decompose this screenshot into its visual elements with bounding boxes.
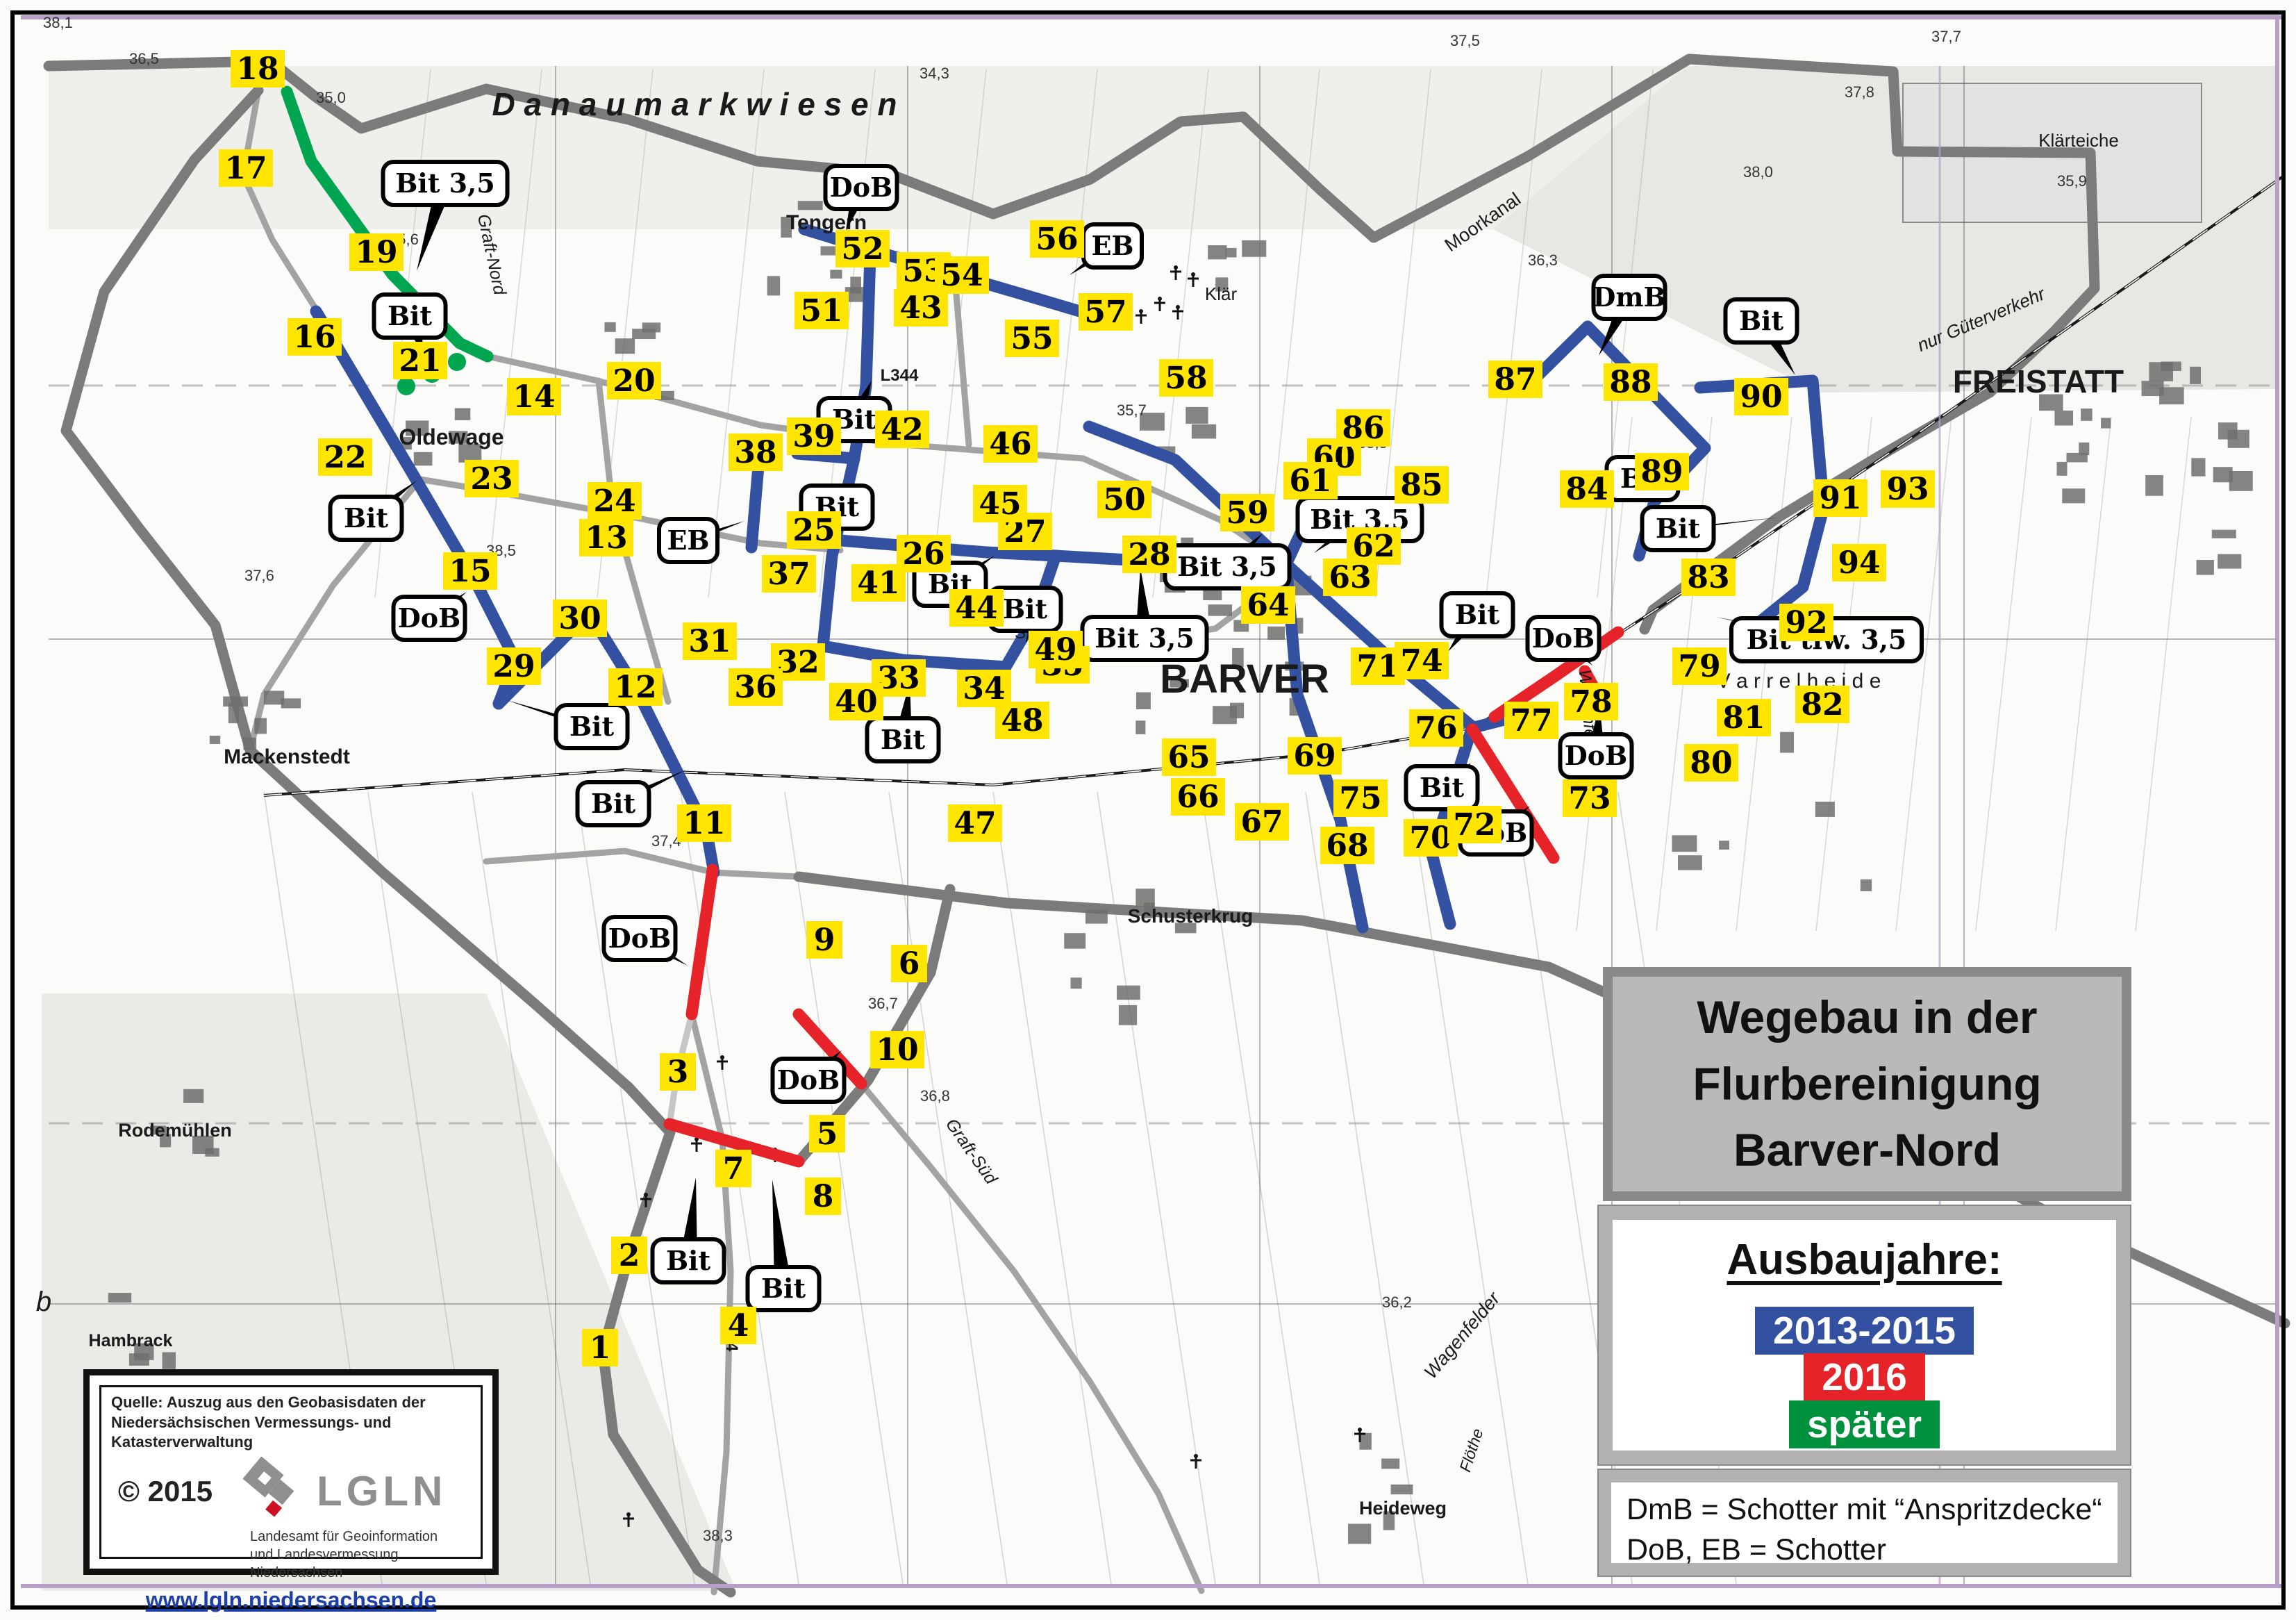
elevation-label: 36,8 bbox=[920, 1087, 950, 1105]
number-label: 31 bbox=[688, 624, 731, 659]
title-line-1: Wegebau in der bbox=[1697, 984, 2037, 1051]
building bbox=[2062, 488, 2085, 503]
building bbox=[264, 691, 284, 704]
elevation-label: 37,6 bbox=[244, 567, 274, 584]
number-label: 55 bbox=[1010, 321, 1053, 356]
callout-label: Bit bbox=[666, 1245, 711, 1276]
elevation-label: 36,3 bbox=[1528, 251, 1558, 269]
building bbox=[455, 408, 470, 420]
building bbox=[1861, 879, 1872, 891]
number-label: 36 bbox=[734, 670, 776, 705]
number-label: 32 bbox=[776, 645, 819, 680]
source-org-line2: und Landesvermessung Niedersachsen bbox=[250, 1547, 398, 1580]
callout-label: Bit bbox=[1420, 772, 1465, 803]
title-box: Wegebau in der Flurbereinigung Barver-No… bbox=[1603, 967, 2131, 1201]
number-label: 45 bbox=[979, 486, 1021, 522]
number-label: 16 bbox=[293, 320, 335, 355]
place-name: Oldewage bbox=[399, 424, 504, 449]
number-label: 9 bbox=[814, 923, 835, 958]
place-name: Schusterkrug bbox=[1128, 905, 1254, 927]
elevation-label: 38,1 bbox=[43, 14, 73, 31]
legend-entry-3: später bbox=[1789, 1400, 1940, 1448]
building bbox=[414, 452, 433, 465]
callout-label: DmB bbox=[1592, 281, 1665, 313]
elevation-label: 37,4 bbox=[651, 832, 681, 850]
building bbox=[615, 338, 635, 354]
building bbox=[604, 322, 615, 332]
building bbox=[1192, 424, 1216, 439]
source-org-line1: Landesamt für Geoinformation bbox=[250, 1529, 438, 1544]
legend-entry-2: 2016 bbox=[1804, 1353, 1924, 1401]
wind-turbine-icon bbox=[626, 1512, 631, 1516]
elevation-label: 36,2 bbox=[1382, 1293, 1412, 1311]
number-label: 94 bbox=[1838, 545, 1880, 581]
page-root: { "title_box": {"lines": ["Wegebau in de… bbox=[0, 0, 2296, 1620]
callout-label: EB bbox=[667, 524, 709, 556]
callout-label: Bit bbox=[881, 724, 926, 755]
number-label: 48 bbox=[1001, 703, 1043, 738]
building bbox=[767, 276, 780, 295]
building bbox=[1242, 240, 1266, 257]
number-label: 26 bbox=[902, 536, 945, 572]
callout-label: Bit 3,5 bbox=[1095, 622, 1194, 654]
wind-turbine-icon bbox=[1174, 265, 1178, 270]
number-label: 72 bbox=[1453, 807, 1495, 843]
place-name: Mackenstedt bbox=[224, 745, 350, 768]
building bbox=[1135, 720, 1145, 734]
construction-dot-green bbox=[397, 377, 415, 395]
lgln-logo-icon bbox=[229, 1457, 313, 1526]
number-label: 57 bbox=[1084, 295, 1126, 330]
number-label: 6 bbox=[899, 946, 920, 982]
number-label: 34 bbox=[963, 671, 1005, 706]
construction-dot-green bbox=[448, 353, 466, 371]
number-label: 68 bbox=[1326, 828, 1368, 863]
number-label: 75 bbox=[1339, 781, 1381, 816]
building bbox=[228, 702, 239, 723]
callout-label: Bit bbox=[761, 1273, 806, 1304]
number-label: 41 bbox=[857, 565, 899, 601]
building bbox=[108, 1293, 131, 1303]
copyright-text: © 2015 bbox=[118, 1475, 229, 1508]
building bbox=[1381, 1459, 1399, 1469]
number-label: 74 bbox=[1400, 643, 1442, 679]
building bbox=[2161, 361, 2181, 370]
legend-entries: 2013-20152016später bbox=[1613, 1307, 2116, 1448]
wind-turbine-icon bbox=[1158, 297, 1162, 301]
elevation-label: 37,5 bbox=[1450, 32, 1480, 49]
place-name: L344 bbox=[881, 366, 919, 385]
elevation-label: 36,7 bbox=[868, 995, 898, 1012]
number-label: 61 bbox=[1289, 463, 1331, 499]
building bbox=[1186, 407, 1208, 424]
building bbox=[2229, 471, 2253, 491]
building bbox=[1391, 1485, 1413, 1494]
callout-label: Bit bbox=[569, 711, 615, 742]
source-mid-row: © 2015 LGLN bbox=[111, 1457, 471, 1526]
place-name: b bbox=[36, 1287, 51, 1317]
building bbox=[163, 1352, 176, 1369]
building bbox=[1085, 910, 1108, 924]
elevation-label: 34,3 bbox=[920, 65, 949, 82]
number-label: 47 bbox=[954, 806, 996, 841]
number-label: 77 bbox=[1510, 703, 1552, 738]
building bbox=[1135, 888, 1154, 907]
source-quelle-line1: Quelle: Auszug aus den Geobasisdaten der bbox=[111, 1394, 426, 1411]
number-label: 19 bbox=[355, 235, 397, 270]
building bbox=[2191, 458, 2205, 476]
number-label: 4 bbox=[728, 1308, 749, 1344]
place-name: Hambrack bbox=[89, 1331, 173, 1350]
building bbox=[1678, 855, 1702, 870]
number-label: 25 bbox=[792, 513, 835, 548]
building bbox=[2054, 411, 2073, 425]
building bbox=[1064, 933, 1085, 948]
building bbox=[2067, 453, 2088, 463]
number-label: 2 bbox=[619, 1238, 640, 1273]
building bbox=[2197, 560, 2214, 575]
callout-label: DoB bbox=[398, 602, 460, 634]
number-label: 73 bbox=[1568, 781, 1611, 816]
number-label: 63 bbox=[1329, 560, 1371, 595]
number-label: 88 bbox=[1609, 365, 1652, 400]
building bbox=[798, 201, 823, 210]
number-label: 83 bbox=[1687, 560, 1729, 595]
number-label: 12 bbox=[614, 670, 656, 705]
number-label: 8 bbox=[813, 1179, 834, 1214]
building bbox=[2081, 408, 2092, 421]
number-label: 76 bbox=[1415, 711, 1457, 746]
callout-label: DoB bbox=[1532, 622, 1595, 654]
legend-notes-box: DmB = Schotter mit “Anspritzdecke“ DoB, … bbox=[1599, 1470, 2130, 1576]
legend-heading: Ausbaujahre: bbox=[1613, 1235, 2116, 1284]
number-label: 85 bbox=[1400, 468, 1442, 503]
wind-turbine-icon bbox=[644, 1193, 648, 1197]
source-quelle: Quelle: Auszug aus den Geobasisdaten der… bbox=[111, 1393, 471, 1453]
number-label: 70 bbox=[1409, 820, 1451, 856]
building bbox=[205, 1148, 219, 1157]
building bbox=[1208, 604, 1233, 615]
number-label: 59 bbox=[1226, 495, 1268, 531]
place-name: Rodemühlen bbox=[118, 1120, 232, 1141]
callout-label: EB bbox=[1091, 230, 1133, 261]
building bbox=[1225, 248, 1236, 258]
wind-turbine-icon bbox=[1176, 305, 1180, 309]
lgln-logo: LGLN bbox=[229, 1457, 447, 1526]
number-label: 39 bbox=[792, 419, 835, 454]
number-label: 56 bbox=[1035, 222, 1078, 257]
source-org: Landesamt für Geoinformation und Landesv… bbox=[250, 1528, 471, 1582]
number-label: 37 bbox=[767, 556, 810, 592]
number-label: 15 bbox=[449, 554, 491, 589]
building bbox=[1117, 986, 1140, 1000]
building bbox=[1213, 706, 1237, 724]
number-label: 87 bbox=[1494, 362, 1536, 397]
callout-label: DoB bbox=[608, 923, 671, 954]
building bbox=[1267, 627, 1285, 640]
elevation-label: 38,0 bbox=[1743, 163, 1773, 181]
callout-label: Bit 3,5 bbox=[395, 167, 494, 199]
building bbox=[830, 270, 842, 278]
place-name: BARVER bbox=[1160, 656, 1329, 702]
building bbox=[1780, 732, 1794, 753]
building bbox=[850, 276, 861, 293]
building bbox=[2190, 367, 2201, 384]
number-label: 65 bbox=[1167, 740, 1210, 775]
building bbox=[2228, 430, 2249, 448]
number-label: 43 bbox=[899, 290, 942, 326]
legend-entry-1: 2013-2015 bbox=[1755, 1307, 1974, 1355]
source-quelle-line2: Niedersächsischen Vermessungs- und Katas… bbox=[111, 1414, 392, 1451]
number-label: 49 bbox=[1034, 632, 1076, 668]
number-label: 3 bbox=[667, 1055, 689, 1090]
number-label: 91 bbox=[1819, 481, 1861, 516]
building bbox=[1815, 802, 1835, 817]
number-label: 81 bbox=[1722, 700, 1765, 736]
number-label: 50 bbox=[1103, 482, 1145, 518]
building bbox=[1672, 835, 1697, 852]
building bbox=[1359, 1433, 1371, 1450]
number-label: 84 bbox=[1565, 472, 1608, 507]
place-name: Klärteiche bbox=[2038, 130, 2119, 151]
building bbox=[1348, 1524, 1371, 1544]
place-name: FREISTATT bbox=[1953, 363, 2124, 399]
elevation-label: 35,9 bbox=[2057, 172, 2087, 190]
number-label: 82 bbox=[1801, 687, 1843, 722]
number-label: 54 bbox=[940, 258, 983, 293]
place-name: D a n a u m a r k w i e s e n bbox=[492, 86, 897, 122]
place-name: Heideweg bbox=[1359, 1498, 1447, 1519]
number-label: 52 bbox=[841, 231, 883, 267]
number-label: 92 bbox=[1785, 605, 1827, 640]
building bbox=[1136, 693, 1151, 709]
number-label: 18 bbox=[236, 51, 278, 87]
number-label: 66 bbox=[1176, 779, 1219, 815]
legend-box: Ausbaujahre: 2013-20152016später bbox=[1599, 1206, 2130, 1464]
callout-label: DoB bbox=[777, 1064, 840, 1096]
number-label: 38 bbox=[734, 435, 776, 470]
number-label: 58 bbox=[1165, 361, 1207, 396]
building bbox=[2101, 418, 2111, 429]
number-label: 20 bbox=[613, 363, 655, 399]
number-label: 17 bbox=[224, 151, 267, 186]
number-label: 78 bbox=[1570, 684, 1612, 720]
number-label: 1 bbox=[590, 1330, 611, 1366]
title-line-2: Flurbereinigung bbox=[1692, 1051, 2041, 1118]
callout-label: Bit bbox=[1739, 305, 1784, 336]
building bbox=[2057, 462, 2068, 476]
building bbox=[2145, 475, 2163, 496]
callout-label: DoB bbox=[830, 172, 892, 203]
callout-label: Bit bbox=[1003, 593, 1048, 625]
note-dmb: DmB = Schotter mit “Anspritzdecke“ bbox=[1627, 1489, 2118, 1530]
building bbox=[254, 718, 267, 734]
number-label: 79 bbox=[1678, 649, 1720, 684]
elevation-label: 37,7 bbox=[1931, 28, 1961, 45]
building bbox=[1119, 1005, 1137, 1025]
number-label: 13 bbox=[585, 520, 627, 556]
callout-label: Bit bbox=[1455, 599, 1500, 630]
building bbox=[210, 736, 220, 744]
wind-turbine-icon bbox=[1139, 309, 1143, 313]
lgln-url[interactable]: www.lgln.niedersachsen.de bbox=[111, 1587, 471, 1613]
number-label: 71 bbox=[1356, 649, 1399, 684]
note-dob-eb: DoB, EB = Schotter bbox=[1627, 1530, 2118, 1570]
elevation-label: 36,5 bbox=[129, 50, 159, 67]
number-label: 5 bbox=[817, 1116, 838, 1152]
lgln-wordmark: LGLN bbox=[317, 1467, 447, 1515]
elevation-label: 35,0 bbox=[316, 89, 346, 106]
number-label: 33 bbox=[877, 661, 920, 696]
building bbox=[2142, 381, 2164, 396]
wind-turbine-icon bbox=[720, 1055, 724, 1059]
callout-label: Bit bbox=[344, 502, 389, 534]
number-label: 90 bbox=[1740, 379, 1782, 415]
number-label: 7 bbox=[723, 1151, 744, 1187]
number-label: 40 bbox=[835, 684, 877, 720]
elevation-label: 37,8 bbox=[1845, 83, 1874, 101]
callout-label: Bit 3,5 bbox=[1177, 551, 1276, 582]
building bbox=[1719, 841, 1729, 850]
number-label: 44 bbox=[955, 590, 997, 626]
number-label: 29 bbox=[492, 649, 535, 684]
number-label: 89 bbox=[1640, 454, 1683, 490]
place-name: Klär bbox=[1205, 283, 1238, 304]
building bbox=[2212, 530, 2236, 538]
building bbox=[632, 329, 656, 339]
source-inner-frame: Quelle: Auszug aus den Geobasisdaten der… bbox=[99, 1385, 483, 1559]
source-box: Quelle: Auszug aus den Geobasisdaten der… bbox=[83, 1369, 499, 1575]
number-label: 93 bbox=[1886, 472, 1929, 507]
elevation-label: 35,7 bbox=[1117, 402, 1147, 419]
number-label: 23 bbox=[470, 461, 513, 497]
elevation-label: 38,3 bbox=[703, 1527, 733, 1544]
number-label: 11 bbox=[683, 806, 725, 841]
callout-label: Bit bbox=[388, 300, 433, 331]
number-label: 30 bbox=[558, 601, 601, 636]
number-label: 42 bbox=[881, 412, 923, 447]
number-label: 69 bbox=[1293, 738, 1336, 774]
callout-label: Bit bbox=[591, 788, 636, 819]
number-label: 24 bbox=[593, 483, 635, 519]
wind-turbine-icon bbox=[1358, 1428, 1362, 1432]
building bbox=[1208, 245, 1226, 259]
number-label: 80 bbox=[1690, 745, 1732, 781]
building bbox=[1070, 977, 1081, 989]
number-label: 86 bbox=[1342, 411, 1384, 446]
number-label: 67 bbox=[1240, 804, 1283, 840]
number-label: 64 bbox=[1247, 588, 1289, 623]
number-label: 10 bbox=[876, 1032, 918, 1068]
number-label: 46 bbox=[989, 427, 1031, 462]
number-label: 28 bbox=[1128, 537, 1170, 572]
number-label: 21 bbox=[399, 343, 441, 379]
title-line-3: Barver-Nord bbox=[1733, 1117, 2001, 1184]
building bbox=[2218, 554, 2241, 569]
callout-label: DoB bbox=[1565, 740, 1627, 771]
wind-turbine-icon bbox=[1194, 1454, 1198, 1458]
number-label: 51 bbox=[800, 293, 842, 329]
number-label: 14 bbox=[513, 379, 555, 415]
building bbox=[183, 1089, 203, 1103]
number-label: 22 bbox=[324, 440, 366, 475]
wind-turbine-icon bbox=[1191, 272, 1195, 276]
callout-label: Bit bbox=[1656, 513, 1701, 544]
